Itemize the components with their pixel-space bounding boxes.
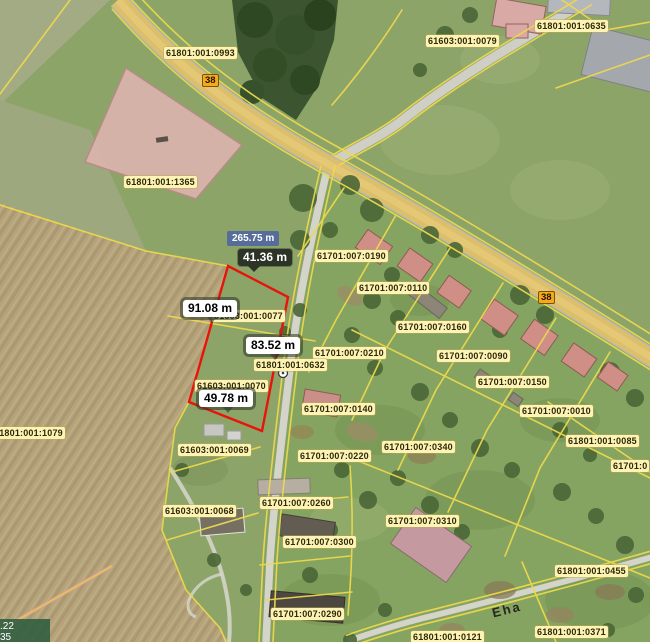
parcel-label: 61801:001:0455 xyxy=(555,565,628,577)
measurement-total-label: 265.75 m xyxy=(227,231,279,246)
measurement-segment-label: 41.36 m xyxy=(238,249,292,266)
parcel-label: 61701:007:0190 xyxy=(315,250,388,262)
parcel-label: 61603:001:0069 xyxy=(178,444,251,456)
parcel-label: 61701:007:0110 xyxy=(357,282,429,294)
coordinate-line-1: .22 xyxy=(0,621,50,632)
parcel-label: 61801:001:0635 xyxy=(535,20,608,32)
parcel-label: 61701:007:0340 xyxy=(382,441,455,453)
parcel-label: 61701:007:0310 xyxy=(386,515,459,527)
map-labels-layer: 61801:001:099361603:001:007961801:001:06… xyxy=(0,0,650,642)
parcel-label: 61701:007:0260 xyxy=(260,497,333,509)
coordinate-overlay: .22 35 xyxy=(0,619,50,642)
parcel-label: 61701:007:0210 xyxy=(313,347,386,359)
parcel-label: 61801:001:0632 xyxy=(254,359,327,371)
measurement-segment-label: 49.78 m xyxy=(199,390,253,407)
road-number-badge: 38 xyxy=(538,291,555,304)
measurement-segment-label: 83.52 m xyxy=(246,337,300,354)
parcel-label: 61801:001:0121 xyxy=(411,631,484,642)
parcel-label: 61801:001:0371 xyxy=(535,626,608,638)
parcel-label: 61701:007:0010 xyxy=(520,405,593,417)
parcel-label: 61701:007:0300 xyxy=(283,536,356,548)
parcel-label: 61801:001:1365 xyxy=(124,176,197,188)
parcel-label: 61603:001:0079 xyxy=(426,35,499,47)
parcel-label: 61701:007:0090 xyxy=(437,350,510,362)
parcel-label: 61701:007:0140 xyxy=(302,403,375,415)
road-number-badge: 38 xyxy=(202,74,219,87)
map-canvas[interactable]: 61801:001:099361603:001:007961801:001:06… xyxy=(0,0,650,642)
measurement-segment-label: 91.08 m xyxy=(183,300,237,317)
parcel-label: 61701:007:0290 xyxy=(271,608,344,620)
parcel-label: 61701:007:0150 xyxy=(476,376,549,388)
street-name-label: Eha xyxy=(491,600,523,621)
parcel-label: 61701:0 xyxy=(611,460,649,472)
parcel-label: 61701:007:0160 xyxy=(396,321,469,333)
parcel-label: 61801:001:0085 xyxy=(566,435,639,447)
parcel-label: 61603:001:0068 xyxy=(163,505,236,517)
parcel-label: 61701:007:0220 xyxy=(298,450,371,462)
parcel-label: 61801:001:1079 xyxy=(0,427,65,439)
parcel-label: 61801:001:0993 xyxy=(164,47,237,59)
coordinate-line-2: 35 xyxy=(0,632,50,642)
